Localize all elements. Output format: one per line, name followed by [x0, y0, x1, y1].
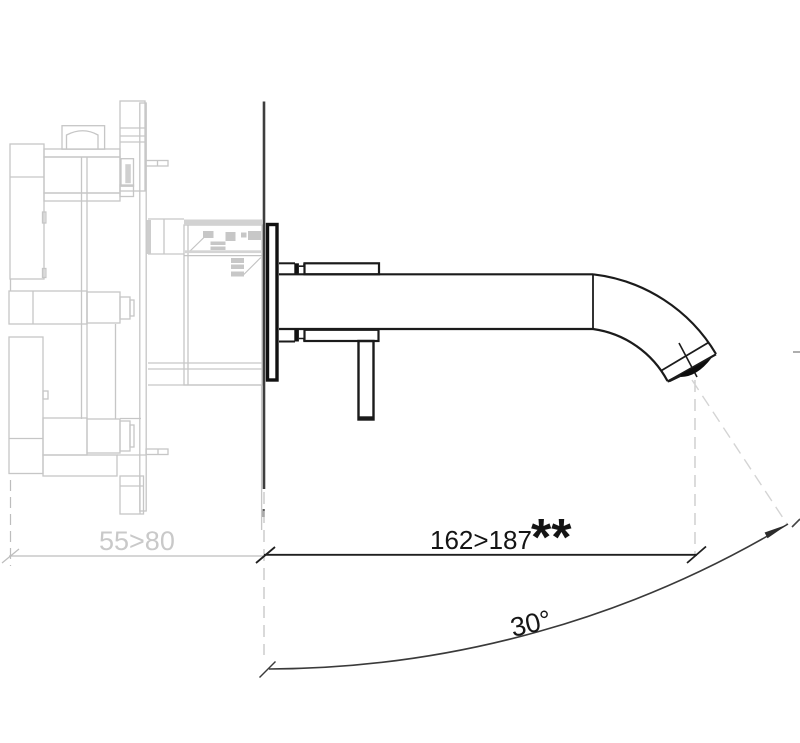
svg-text:55>80: 55>80: [99, 526, 175, 556]
svg-text:162>187: 162>187: [430, 525, 532, 555]
svg-text:30°: 30°: [508, 604, 555, 642]
svg-text:**: **: [531, 509, 572, 567]
